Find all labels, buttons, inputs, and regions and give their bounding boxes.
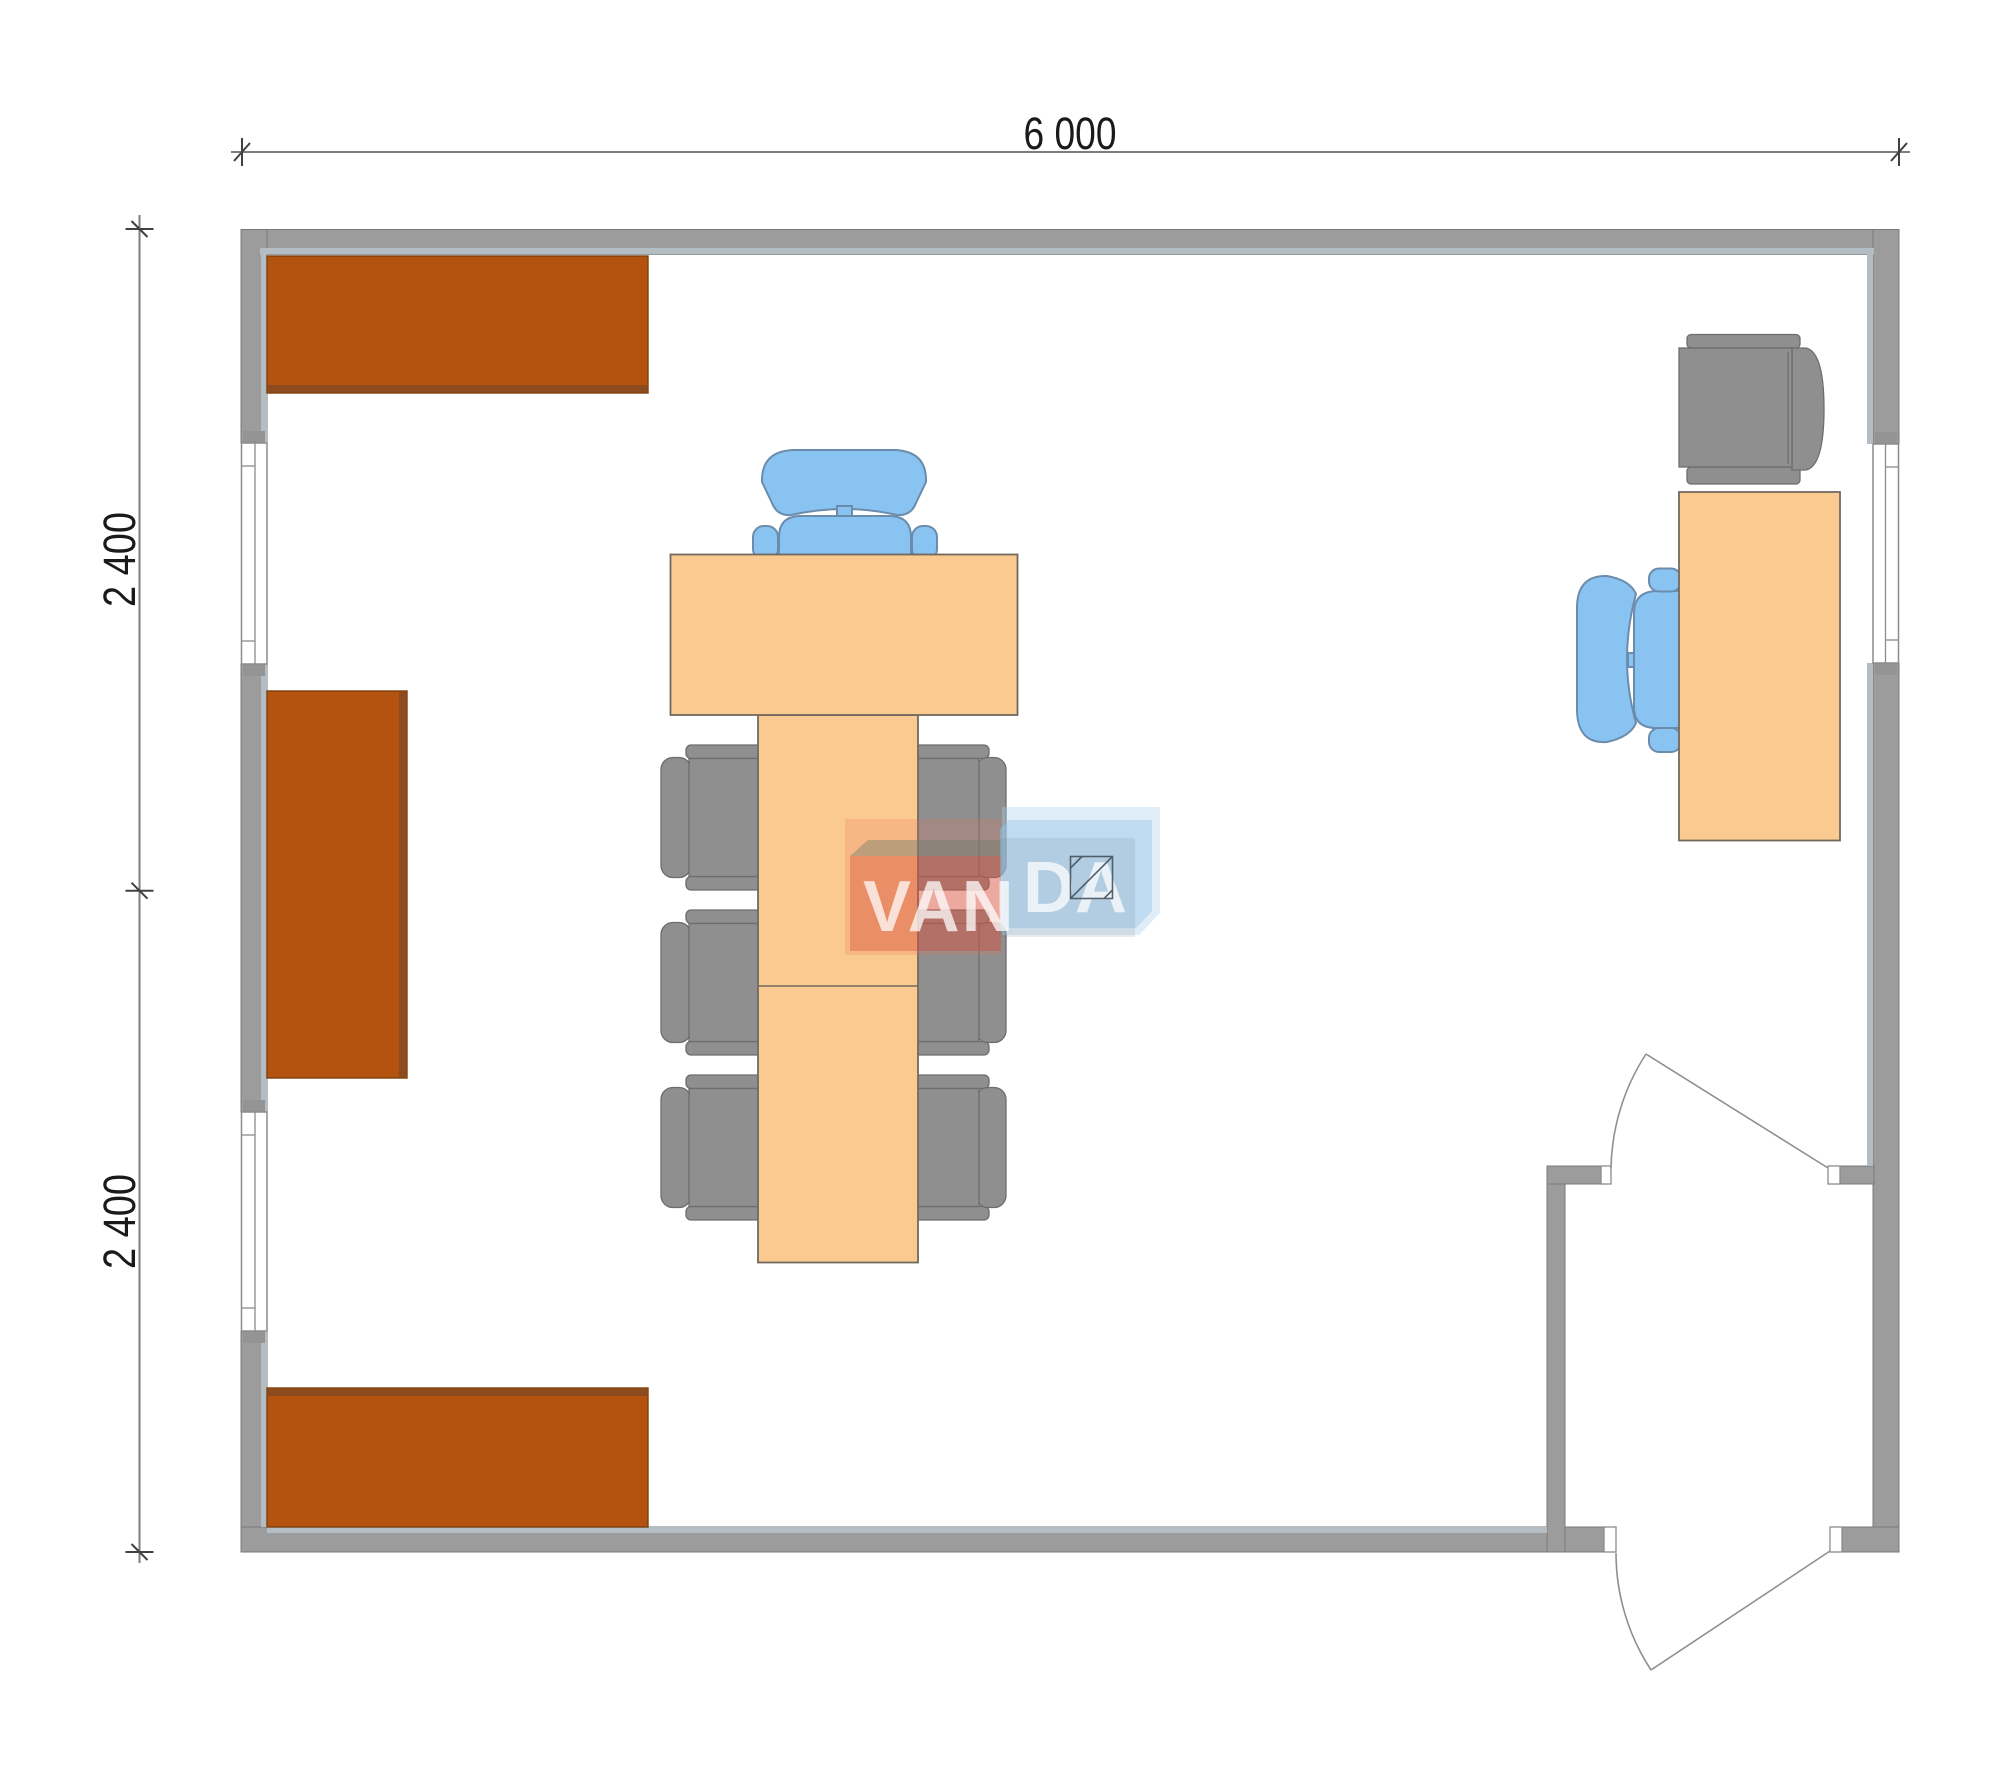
svg-text:6 000: 6 000 — [1024, 108, 1117, 159]
svg-text:2 400: 2 400 — [94, 512, 145, 607]
svg-text:2 400: 2 400 — [94, 1174, 145, 1269]
svg-text:DA: DA — [1023, 848, 1127, 928]
svg-text:VAN: VAN — [863, 867, 1016, 947]
